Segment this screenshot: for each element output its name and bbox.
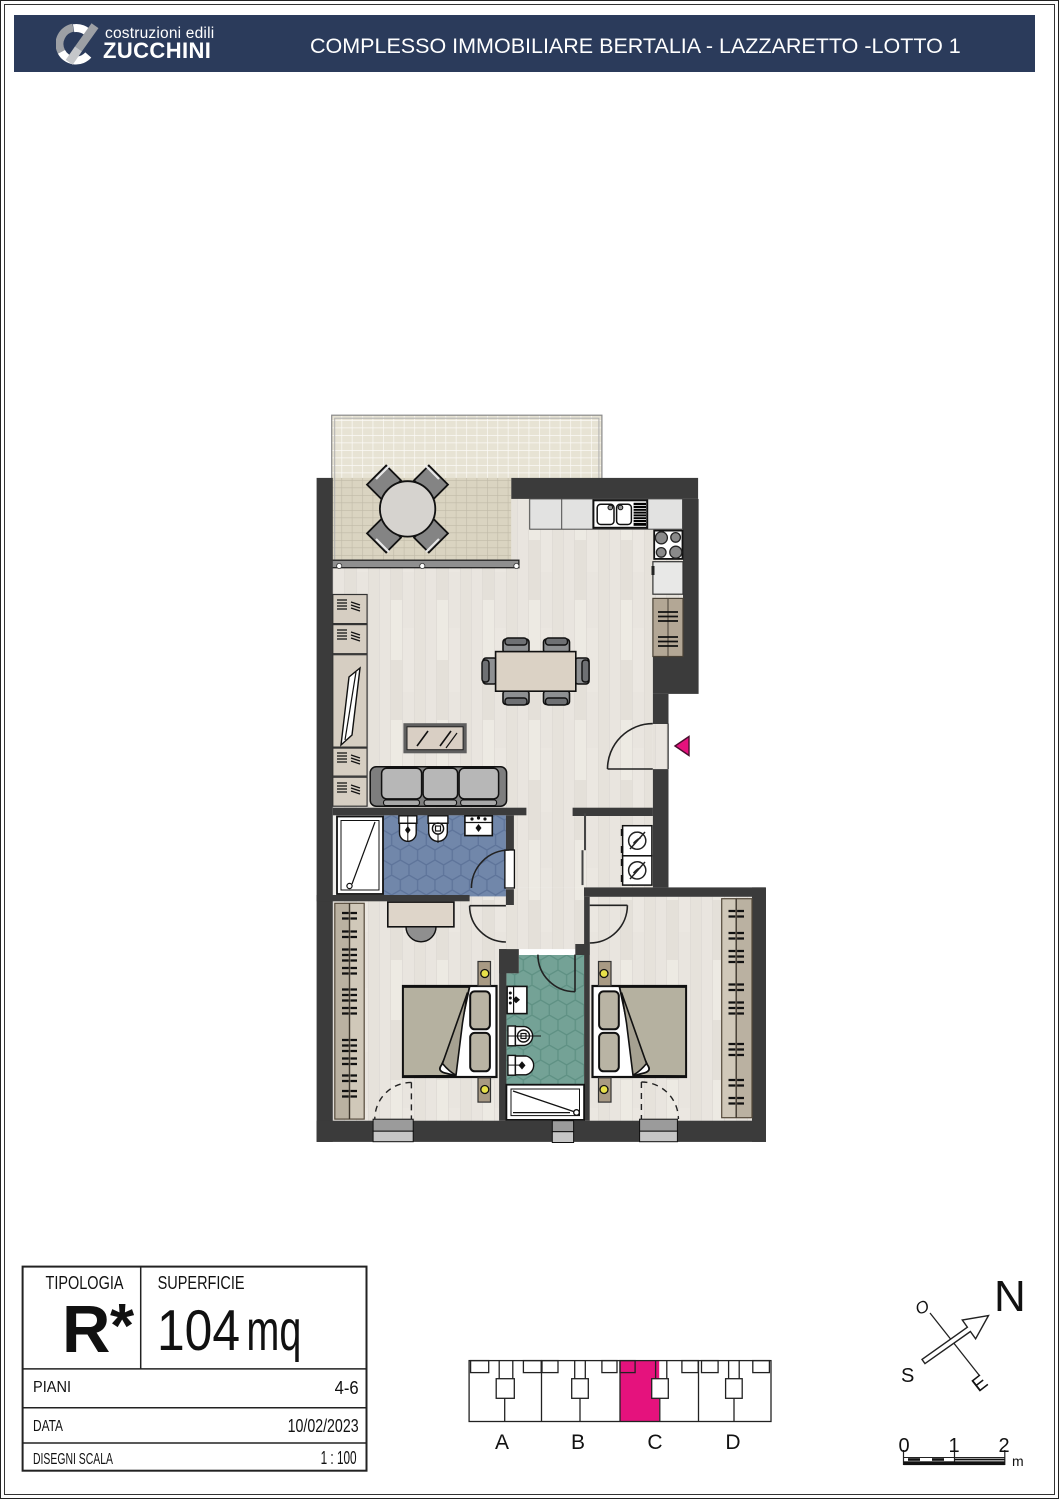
svg-text:0: 0: [898, 1435, 909, 1457]
svg-text:TIPOLOGIA: TIPOLOGIA: [46, 1273, 124, 1293]
svg-text:PIANI: PIANI: [33, 1379, 71, 1396]
svg-text:DISEGNI SCALA: DISEGNI SCALA: [33, 1451, 113, 1468]
svg-text:m: m: [1012, 1453, 1024, 1469]
svg-text:B: B: [571, 1431, 585, 1454]
svg-text:N: N: [994, 1272, 1026, 1321]
svg-text:1: 1: [948, 1435, 959, 1457]
svg-text:SUPERFICIE: SUPERFICIE: [158, 1273, 245, 1293]
svg-text:10/02/2023: 10/02/2023: [288, 1415, 359, 1436]
svg-text:S: S: [901, 1365, 914, 1387]
svg-text:O: O: [913, 1296, 932, 1318]
svg-text:104: 104: [157, 1299, 240, 1363]
svg-text:E: E: [968, 1371, 992, 1397]
svg-text:R: R: [62, 1292, 110, 1367]
svg-text:D: D: [725, 1431, 740, 1454]
svg-text:1 : 100: 1 : 100: [321, 1447, 357, 1468]
svg-text:A: A: [495, 1431, 509, 1454]
svg-text:C: C: [647, 1431, 662, 1454]
svg-text:2: 2: [998, 1435, 1009, 1457]
svg-text:mq: mq: [246, 1299, 301, 1363]
svg-text:*: *: [110, 1292, 135, 1361]
svg-text:4-6: 4-6: [335, 1377, 359, 1398]
svg-text:DATA: DATA: [33, 1418, 64, 1435]
